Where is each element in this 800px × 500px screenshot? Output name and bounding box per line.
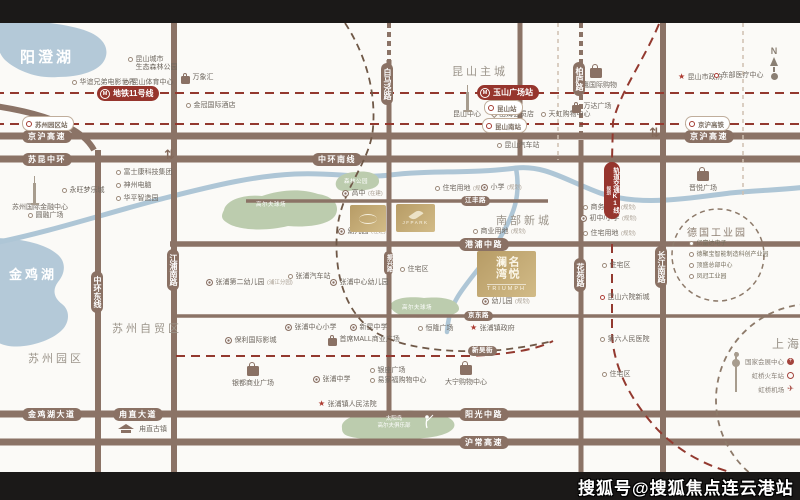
poi-label: 住宅用地 [591, 230, 619, 238]
map-poi: 万达广场 [572, 103, 612, 113]
park-label: 高尔夫球场 [402, 303, 432, 311]
poi-label: 昆山中心 [453, 111, 481, 119]
poi-label: 张浦第二幼儿园 [216, 279, 265, 287]
metro-logo-icon: M [100, 89, 110, 99]
dot-marker-icon [370, 378, 375, 383]
dot-marker-icon [62, 188, 67, 193]
dot-marker-icon [541, 112, 546, 117]
road-label: 沪常高速 [459, 436, 509, 449]
map-poi: 圆融广场 [28, 212, 64, 220]
station-icon [689, 121, 695, 127]
map-poi: 张浦中心小学 [285, 324, 337, 332]
dot-marker-icon [186, 103, 191, 108]
shop-bag-icon [572, 105, 581, 113]
dot-marker-icon [602, 263, 607, 268]
road-label: 港浦中路 [459, 238, 509, 251]
rail-station-badge: 苏州园区站 [22, 116, 74, 131]
industrial-park-item: 亿富达电子 [689, 238, 727, 247]
map-poi: 幼儿园(规划) [482, 298, 530, 306]
map-poi: 昆山中心 [453, 111, 481, 119]
map-poi: 富士康科技集团 [116, 169, 173, 177]
station-label: 京沪高铁 [698, 119, 724, 129]
map-poi: 昆山城市生态森林公园 [128, 56, 178, 72]
map-poi: 住宅用地(规划) [583, 230, 636, 238]
shop-bag-icon [181, 76, 190, 84]
road-label-vertical: 柏庐路 [573, 62, 585, 96]
poi-label: 第六人民医院 [608, 336, 650, 344]
poi-label: 首席MALL商业广场 [340, 336, 400, 344]
ring-marker-icon [330, 279, 337, 286]
poi-label: 虹桥机场 [758, 384, 784, 394]
road-label: 苏昆中环 [22, 153, 72, 166]
map-poi: 万象汇 [181, 74, 214, 84]
rail-station-badge: 昆山南站 [482, 118, 527, 133]
shanghai-poi: 国家会展中心 [745, 356, 794, 366]
map-poi: 住宅区 [602, 262, 631, 270]
compass-arrow [770, 57, 778, 66]
poi-label: 住宅区 [408, 266, 429, 274]
shanghai-poi: 虹桥火车站 [752, 370, 795, 380]
mall-label: 银都商业广场 [232, 378, 274, 388]
interchange-icon: ⇅ [164, 148, 175, 161]
ring-marker-icon [342, 190, 349, 197]
government-star-icon: ★ [470, 324, 477, 332]
ring-marker-icon [338, 228, 345, 235]
poi-label: 小学 [491, 184, 505, 192]
road-label-vertical: 白马泾路 [381, 63, 393, 105]
shop-bag-icon [247, 366, 259, 376]
triumph-name-en: TRIUMPH [487, 284, 526, 293]
road-label-vertical: 花苑路 [574, 258, 586, 292]
station-icon [26, 121, 32, 127]
map-poi: 张浦中学 [313, 376, 351, 384]
map-poi: 新昆中学 [350, 324, 388, 332]
map-poi: 住宅区 [602, 371, 631, 379]
item-label: 亿富达电子 [697, 238, 727, 247]
map-poi: 小学(规划) [481, 184, 522, 192]
road-label: 新吴街 [468, 346, 497, 356]
project-badge-jfpark: JFPARK [396, 204, 435, 232]
poi-label: 张浦中学 [323, 376, 351, 384]
industrial-park-item: 顶盛总部中心 [689, 260, 733, 269]
dot-marker-icon [116, 170, 121, 175]
map-poi: 高中(在建) [342, 190, 383, 198]
poi-sub-label: (规划) [622, 216, 637, 222]
poi-label: 昆山六院新城 [608, 294, 650, 302]
dot-marker-icon [583, 205, 588, 210]
district-label: 上海 [772, 335, 800, 352]
road-label-vertical: 中环东线 [91, 271, 103, 313]
metro-logo-icon: M [480, 88, 490, 98]
mall-poi: 银都商业广场 [232, 362, 274, 388]
watermark: 搜狐号@搜狐焦点连云港站 [578, 474, 794, 499]
road-label: 江丰路 [461, 196, 490, 206]
poi-label: 住宅区 [610, 262, 631, 270]
expo-icon [787, 358, 794, 365]
road-label: 中环南线 [312, 153, 362, 166]
poi-label: 神州电脑 [124, 182, 152, 190]
dot-marker-icon [689, 263, 694, 268]
map-poi: ★张浦镇政府 [470, 325, 515, 333]
district-label: 苏州园区 [28, 350, 84, 366]
poi-label: 住宅区 [610, 371, 631, 379]
poi-label: 华平智造园 [124, 195, 159, 203]
poi-label: 张浦中心幼儿园 [340, 279, 389, 287]
rdot-marker-icon [600, 295, 605, 300]
top-letterbox-bar [0, 0, 800, 23]
item-label: 顶盛总部中心 [697, 260, 733, 269]
mountain-logo-icon [359, 214, 377, 224]
rail-icon [787, 372, 794, 379]
metro-badge-label: 玉山广场站 [493, 87, 533, 98]
station-label: 昆山南站 [495, 121, 521, 131]
dot-marker-icon [288, 274, 293, 279]
k1-transit-badge: 轨道交通K1线规划 [604, 162, 620, 219]
oriental-pearl-tower-icon [735, 352, 737, 392]
map-poi: 商业用地(规划) [473, 228, 526, 236]
map-poi: 昆山汽车站 [497, 142, 540, 150]
dot-marker-icon [128, 57, 133, 62]
poi-label: 生态森林公园 [136, 64, 178, 72]
map-poi: 恒隆广场 [418, 325, 454, 333]
location-map: 昆山主城南部新城苏州自贸区苏州园区上海阳澄湖金鸡湖京沪高速京沪高速苏昆中环中环南… [0, 0, 800, 500]
mall-poi: 大宁购物中心 [445, 361, 487, 387]
poi-label: 富士康科技集团 [124, 169, 173, 177]
shanghai-poi: 虹桥机场✈ [758, 384, 794, 394]
poi-label: 银座广场 [378, 367, 406, 375]
poi-label: 张浦中心小学 [295, 324, 337, 332]
poi-label: 新昆中学 [360, 324, 388, 332]
map-poi: 易家福购物中心 [370, 377, 427, 385]
map-poi: 昆山六院新城 [600, 294, 650, 302]
mall-label: 晋悦广场 [689, 183, 717, 193]
poi-label: 圆融广场 [36, 212, 64, 220]
poi-sub-label: (规划) [515, 299, 530, 305]
road-label: 阳光中路 [459, 408, 509, 421]
ring-marker-icon [206, 279, 213, 286]
industrial-park-item: 凤冠工业园 [689, 271, 727, 280]
dot-marker-icon [600, 337, 605, 342]
dot-marker-icon [116, 183, 121, 188]
park-label: 森林公园 [344, 177, 368, 185]
rail-station-badge: 昆山站 [484, 100, 523, 115]
map-poi: 首席MALL商业广场 [328, 336, 400, 346]
project-badge-west [350, 205, 386, 232]
station-icon [488, 105, 494, 111]
map-poi: ★张浦镇人民法院 [318, 401, 377, 409]
item-label: 凤冠工业园 [697, 271, 727, 280]
mall-poi: 晋悦广场 [689, 167, 717, 193]
industrial-park-item: 德聚宝智能制造科创产业园 [689, 249, 769, 258]
industrial-park-title: 德国工业园 [687, 224, 747, 239]
golf-club-label: 太阳岛 高尔夫俱乐部 [377, 416, 410, 430]
project-badge-triumph: 名悦澜湾 TRIUMPH [477, 251, 536, 297]
dot-marker-icon [28, 213, 33, 218]
poi-sub-label: (在建) [368, 191, 383, 197]
poi-label: 东部医疗中心 [722, 72, 764, 80]
lake-name: 阳澄湖 [20, 46, 74, 67]
dot-marker-icon [400, 267, 405, 272]
district-label: 南部新城 [496, 212, 552, 228]
dot-marker-icon [497, 143, 502, 148]
poi-label: 张浦镇人民法院 [328, 401, 377, 409]
map-poi: 华平智造园 [116, 195, 159, 203]
map-poi: 苏州国际金融中心 [12, 204, 68, 212]
road-label: 金鸡湖大道 [22, 408, 82, 421]
dot-marker-icon [116, 196, 121, 201]
airport-plane-icon: ✈ [787, 385, 794, 393]
poi-label: 恒隆广场 [426, 325, 454, 333]
ring-marker-icon [580, 215, 587, 222]
rail-station-badge: 京沪高铁 [685, 116, 730, 131]
poi-label: 高中 [352, 190, 366, 198]
poi-label: 张浦镇政府 [480, 325, 515, 333]
poi-label: 保利国际影城 [235, 337, 277, 345]
government-star-icon: ★ [678, 73, 685, 81]
map-poi: 永旺梦乐城 [62, 187, 105, 195]
map-poi: 张浦第二幼儿园(浦江分园) [206, 279, 293, 287]
k1-badge-sub: 规划 [606, 186, 611, 195]
poi-label: 国家会展中心 [745, 356, 784, 366]
poi-label: 万象汇 [193, 74, 214, 82]
district-label: 苏州自贸区 [112, 320, 182, 336]
dot-marker-icon [689, 241, 694, 246]
dot-marker-icon [602, 372, 607, 377]
shop-bag-icon [328, 338, 337, 346]
metro-line-badge: M玉山广场站 [477, 85, 539, 100]
poi-label: 万达广场 [584, 103, 612, 111]
luzhi-ancient-town-icon [118, 424, 134, 433]
poi-label: 商业用地 [481, 228, 509, 236]
road-label: 京东路 [464, 311, 493, 321]
dot-marker-icon [473, 229, 478, 234]
map-poi: 金冠国际酒店 [186, 102, 236, 110]
map-poi: 第六人民医院 [600, 336, 650, 344]
ring-marker-icon [481, 184, 488, 191]
shop-bag-icon [697, 171, 709, 181]
map-poi: 张浦汽车站 [288, 273, 331, 281]
map-poi: 甪直古镇 [139, 426, 167, 434]
suzhou-ifc-tower-icon [33, 183, 36, 205]
shop-bag-icon [460, 365, 472, 375]
poi-label: 苏州国际金融中心 [12, 204, 68, 212]
ring-marker-icon [285, 324, 292, 331]
map-poi: 张浦中心幼儿园 [330, 279, 389, 287]
dot-marker-icon [689, 252, 694, 257]
station-icon [486, 123, 492, 129]
map-poi: 保利国际影城 [225, 337, 277, 345]
poi-label: 住宅用地 [443, 185, 471, 193]
poi-label: 易家福购物中心 [378, 377, 427, 385]
poi-sub-label: (规划) [511, 229, 526, 235]
poi-label: 昆山汽车站 [505, 142, 540, 150]
compass-label: N [771, 46, 778, 56]
k1-badge-label: 轨道交通K1线 [611, 167, 618, 214]
road-label: 京沪高速 [22, 130, 72, 143]
dot-marker-icon [370, 368, 375, 373]
road-label-vertical: 江浦南路 [167, 249, 179, 291]
ring-marker-icon [313, 376, 320, 383]
poi-label: 虹桥火车站 [752, 370, 785, 380]
dot-marker-icon [689, 274, 694, 279]
road-label-vertical: 长江南路 [655, 246, 667, 288]
dot-marker-icon [418, 326, 423, 331]
station-label: 苏州园区站 [35, 119, 68, 129]
poi-sub-label: (规划) [507, 185, 522, 191]
district-label: 昆山主城 [452, 63, 508, 79]
jfpark-label: JFPARK [403, 220, 429, 225]
road-label: 甪直大道 [113, 408, 163, 421]
compass-north-icon: N [770, 46, 778, 80]
ring-marker-icon [350, 324, 357, 331]
poi-label: 张浦汽车站 [296, 273, 331, 281]
metro-badge-label: 地铁11号线 [113, 88, 153, 99]
metro-line-badge: M地铁11号线 [97, 86, 159, 101]
dot-marker-icon [583, 231, 588, 236]
park-label: 高尔夫球场 [256, 200, 286, 208]
interchange-icon: ⇅ [649, 126, 660, 139]
poi-label: 甪直古镇 [139, 426, 167, 434]
poi-sub-label: (规划) [621, 205, 636, 211]
map-poi: 东部医疗中心 [714, 72, 764, 80]
poi-label: 昆山城市 [136, 56, 178, 64]
lake-name: 金鸡湖 [9, 264, 57, 283]
map-poi: 神州电脑 [116, 182, 152, 190]
ring-marker-icon [225, 337, 232, 344]
poi-label: 金冠国际酒店 [194, 102, 236, 110]
station-label: 昆山站 [497, 103, 517, 113]
shop-bag-icon [590, 68, 602, 78]
dot-marker-icon [435, 186, 440, 191]
dot-marker-icon [72, 80, 77, 85]
poi-label: 永旺梦乐城 [70, 187, 105, 195]
mall-label: 大宁购物中心 [445, 377, 487, 387]
item-label: 德聚宝智能制造科创产业园 [697, 249, 769, 258]
ring-marker-icon [482, 298, 489, 305]
kunshan-center-tower-icon [466, 92, 469, 112]
government-star-icon: ★ [318, 400, 325, 408]
poi-sub-label: (规划) [621, 231, 636, 237]
road-label-vertical: 振兴路 [384, 251, 393, 275]
rdot-marker-icon [714, 73, 719, 78]
poi-label: 幼儿园 [492, 298, 513, 306]
map-poi: 住宅区 [400, 266, 429, 274]
triumph-name-cn: 名悦澜湾 [494, 256, 519, 282]
map-poi: 住宅用地(规划) [435, 185, 488, 193]
road-label: 京沪高速 [684, 130, 734, 143]
map-poi: 银座广场 [370, 367, 406, 375]
